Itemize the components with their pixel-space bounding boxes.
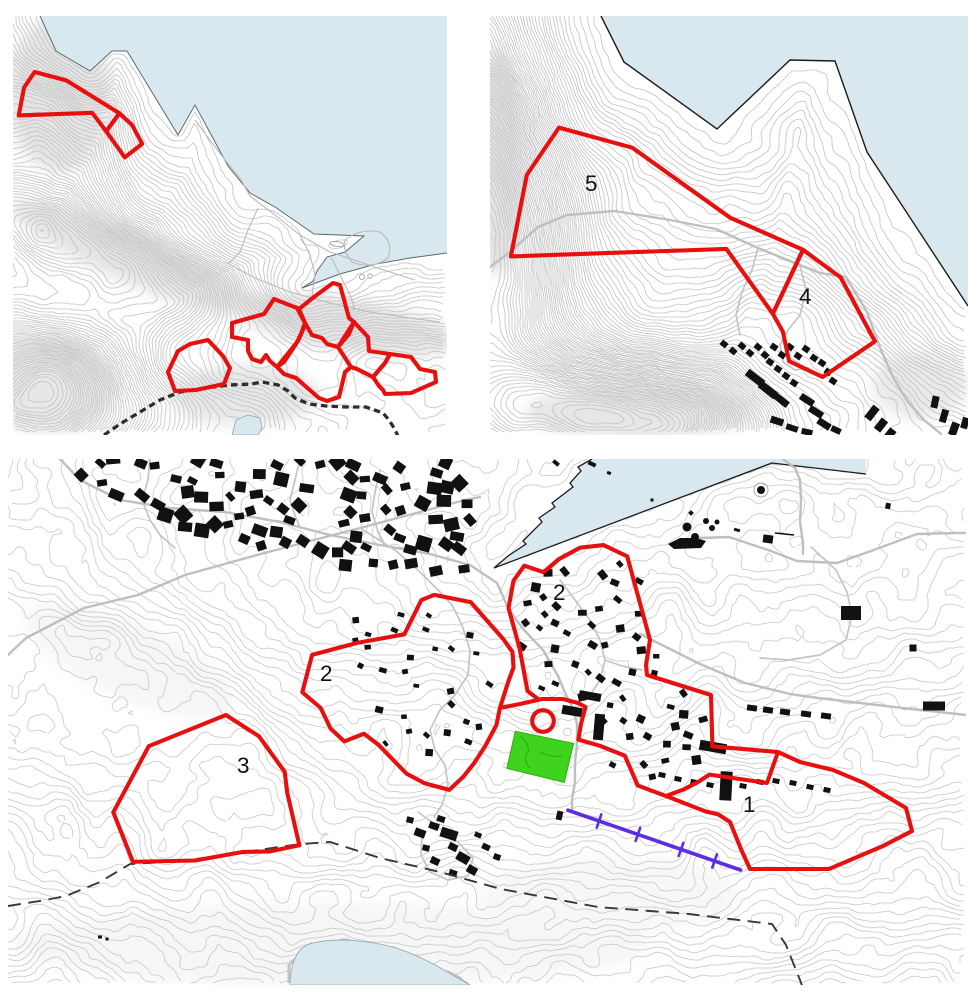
svg-text:3: 3 — [237, 753, 250, 778]
svg-text:1: 1 — [743, 792, 756, 817]
svg-text:2: 2 — [553, 580, 566, 605]
svg-text:5: 5 — [585, 171, 598, 196]
svg-text:4: 4 — [799, 284, 812, 309]
svg-text:2: 2 — [320, 661, 333, 686]
